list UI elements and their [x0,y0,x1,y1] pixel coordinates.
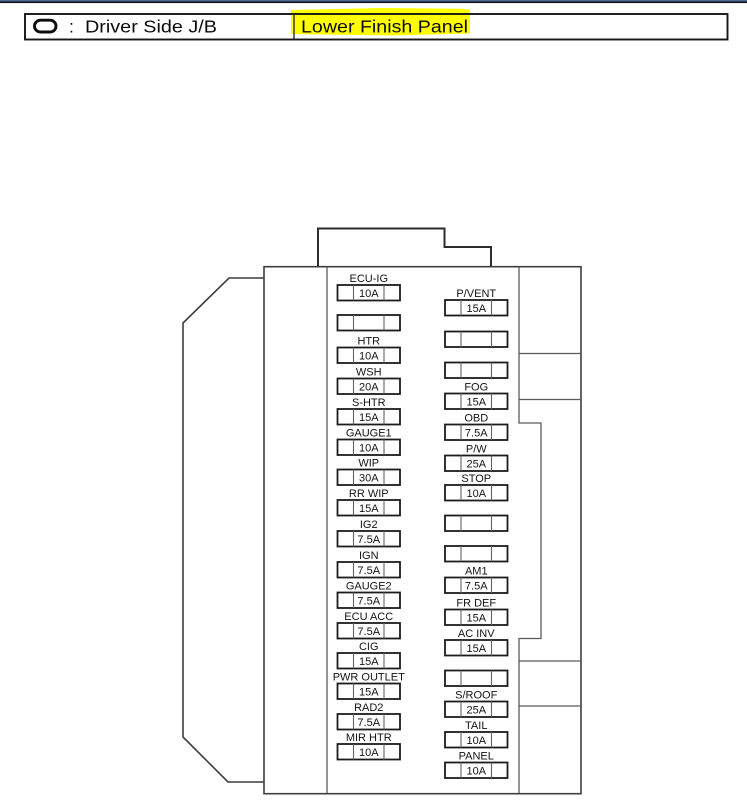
svg-text:7.5A: 7.5A [465,581,488,593]
svg-text:7.5A: 7.5A [357,534,380,546]
svg-text:25A: 25A [466,705,486,717]
svg-text:IGN: IGN [359,550,379,562]
svg-text:ECU-IG: ECU-IG [350,273,389,285]
svg-text:15A: 15A [466,613,486,625]
svg-text:RAD2: RAD2 [354,702,383,714]
svg-text:TAIL: TAIL [465,720,487,732]
svg-text:10A: 10A [359,747,379,759]
svg-text:FOG: FOG [464,381,488,393]
svg-text:RR WIP: RR WIP [349,488,389,500]
svg-text:7.5A: 7.5A [357,565,380,577]
svg-text:10A: 10A [466,488,486,500]
svg-text:25A: 25A [466,459,486,471]
svg-text:15A: 15A [359,503,379,515]
svg-text:30A: 30A [359,473,379,485]
svg-text:WSH: WSH [356,366,382,378]
svg-text:10A: 10A [359,443,379,455]
svg-text:10A: 10A [359,351,379,363]
svg-text:15A: 15A [359,412,379,424]
svg-text:OBD: OBD [464,412,488,424]
svg-text:FR DEF: FR DEF [456,597,496,609]
svg-text:S/ROOF: S/ROOF [455,689,497,701]
svg-text:15A: 15A [359,687,379,699]
svg-text:10A: 10A [359,288,379,300]
svg-text:P/VENT: P/VENT [456,288,496,300]
svg-text:HTR: HTR [357,335,380,347]
svg-text:15A: 15A [359,656,379,668]
svg-text:Lower Finish Panel: Lower Finish Panel [301,17,468,37]
svg-text:7.5A: 7.5A [465,428,488,440]
svg-text:PWR OUTLET: PWR OUTLET [333,671,405,683]
svg-text:AM1: AM1 [465,565,488,577]
svg-text:P/W: P/W [466,443,487,455]
svg-text:7.5A: 7.5A [357,626,380,638]
svg-text:GAUGE2: GAUGE2 [346,580,392,592]
svg-text:15A: 15A [466,643,486,655]
svg-text:ECU ACC: ECU ACC [344,611,393,623]
svg-text:IG2: IG2 [360,519,378,531]
svg-text:Driver Side J/B: Driver Side J/B [85,17,217,37]
svg-text::: : [69,17,74,37]
svg-text:S-HTR: S-HTR [352,397,386,409]
svg-text:7.5A: 7.5A [357,596,380,608]
svg-text:WIP: WIP [358,457,379,469]
svg-text:10A: 10A [466,735,486,747]
svg-text:CIG: CIG [359,641,379,653]
svg-text:GAUGE1: GAUGE1 [346,427,392,439]
svg-text:STOP: STOP [461,473,491,485]
svg-text:AC INV: AC INV [458,628,495,640]
svg-text:10A: 10A [466,766,486,778]
svg-text:20A: 20A [359,382,379,394]
svg-text:MIR HTR: MIR HTR [346,732,392,744]
svg-text:PANEL: PANEL [459,750,494,762]
svg-text:15A: 15A [466,397,486,409]
svg-text:7.5A: 7.5A [357,717,380,729]
svg-text:15A: 15A [466,303,486,315]
